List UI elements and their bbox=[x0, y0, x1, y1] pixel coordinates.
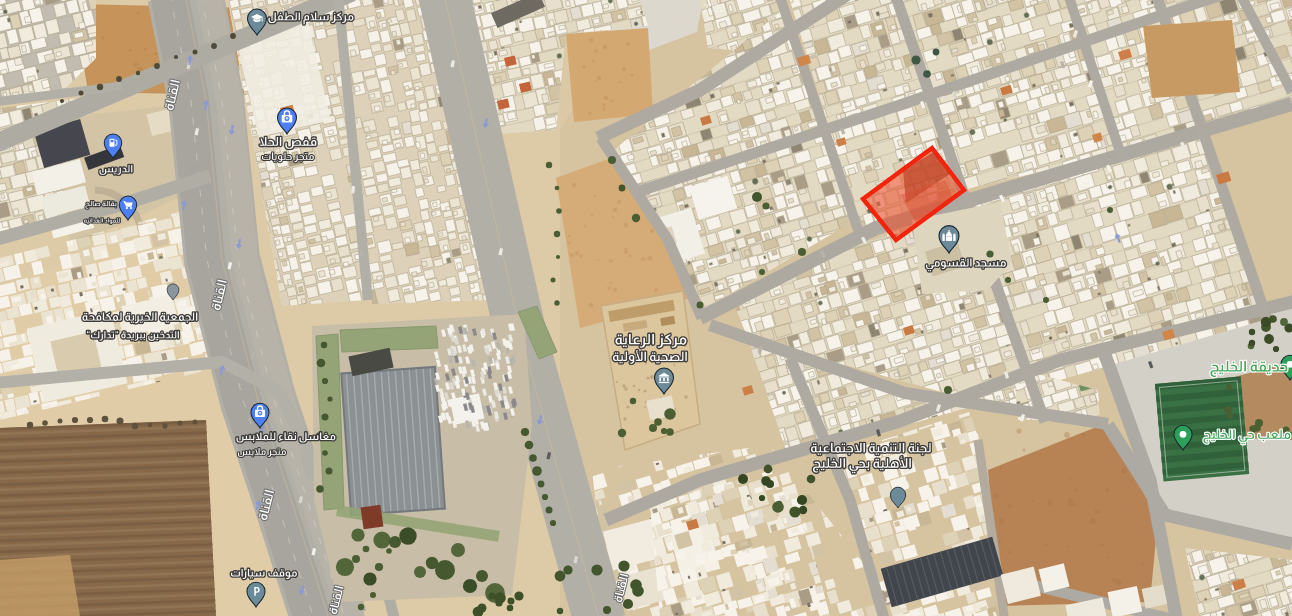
svg-text:2023: 2023 bbox=[703, 3, 726, 14]
